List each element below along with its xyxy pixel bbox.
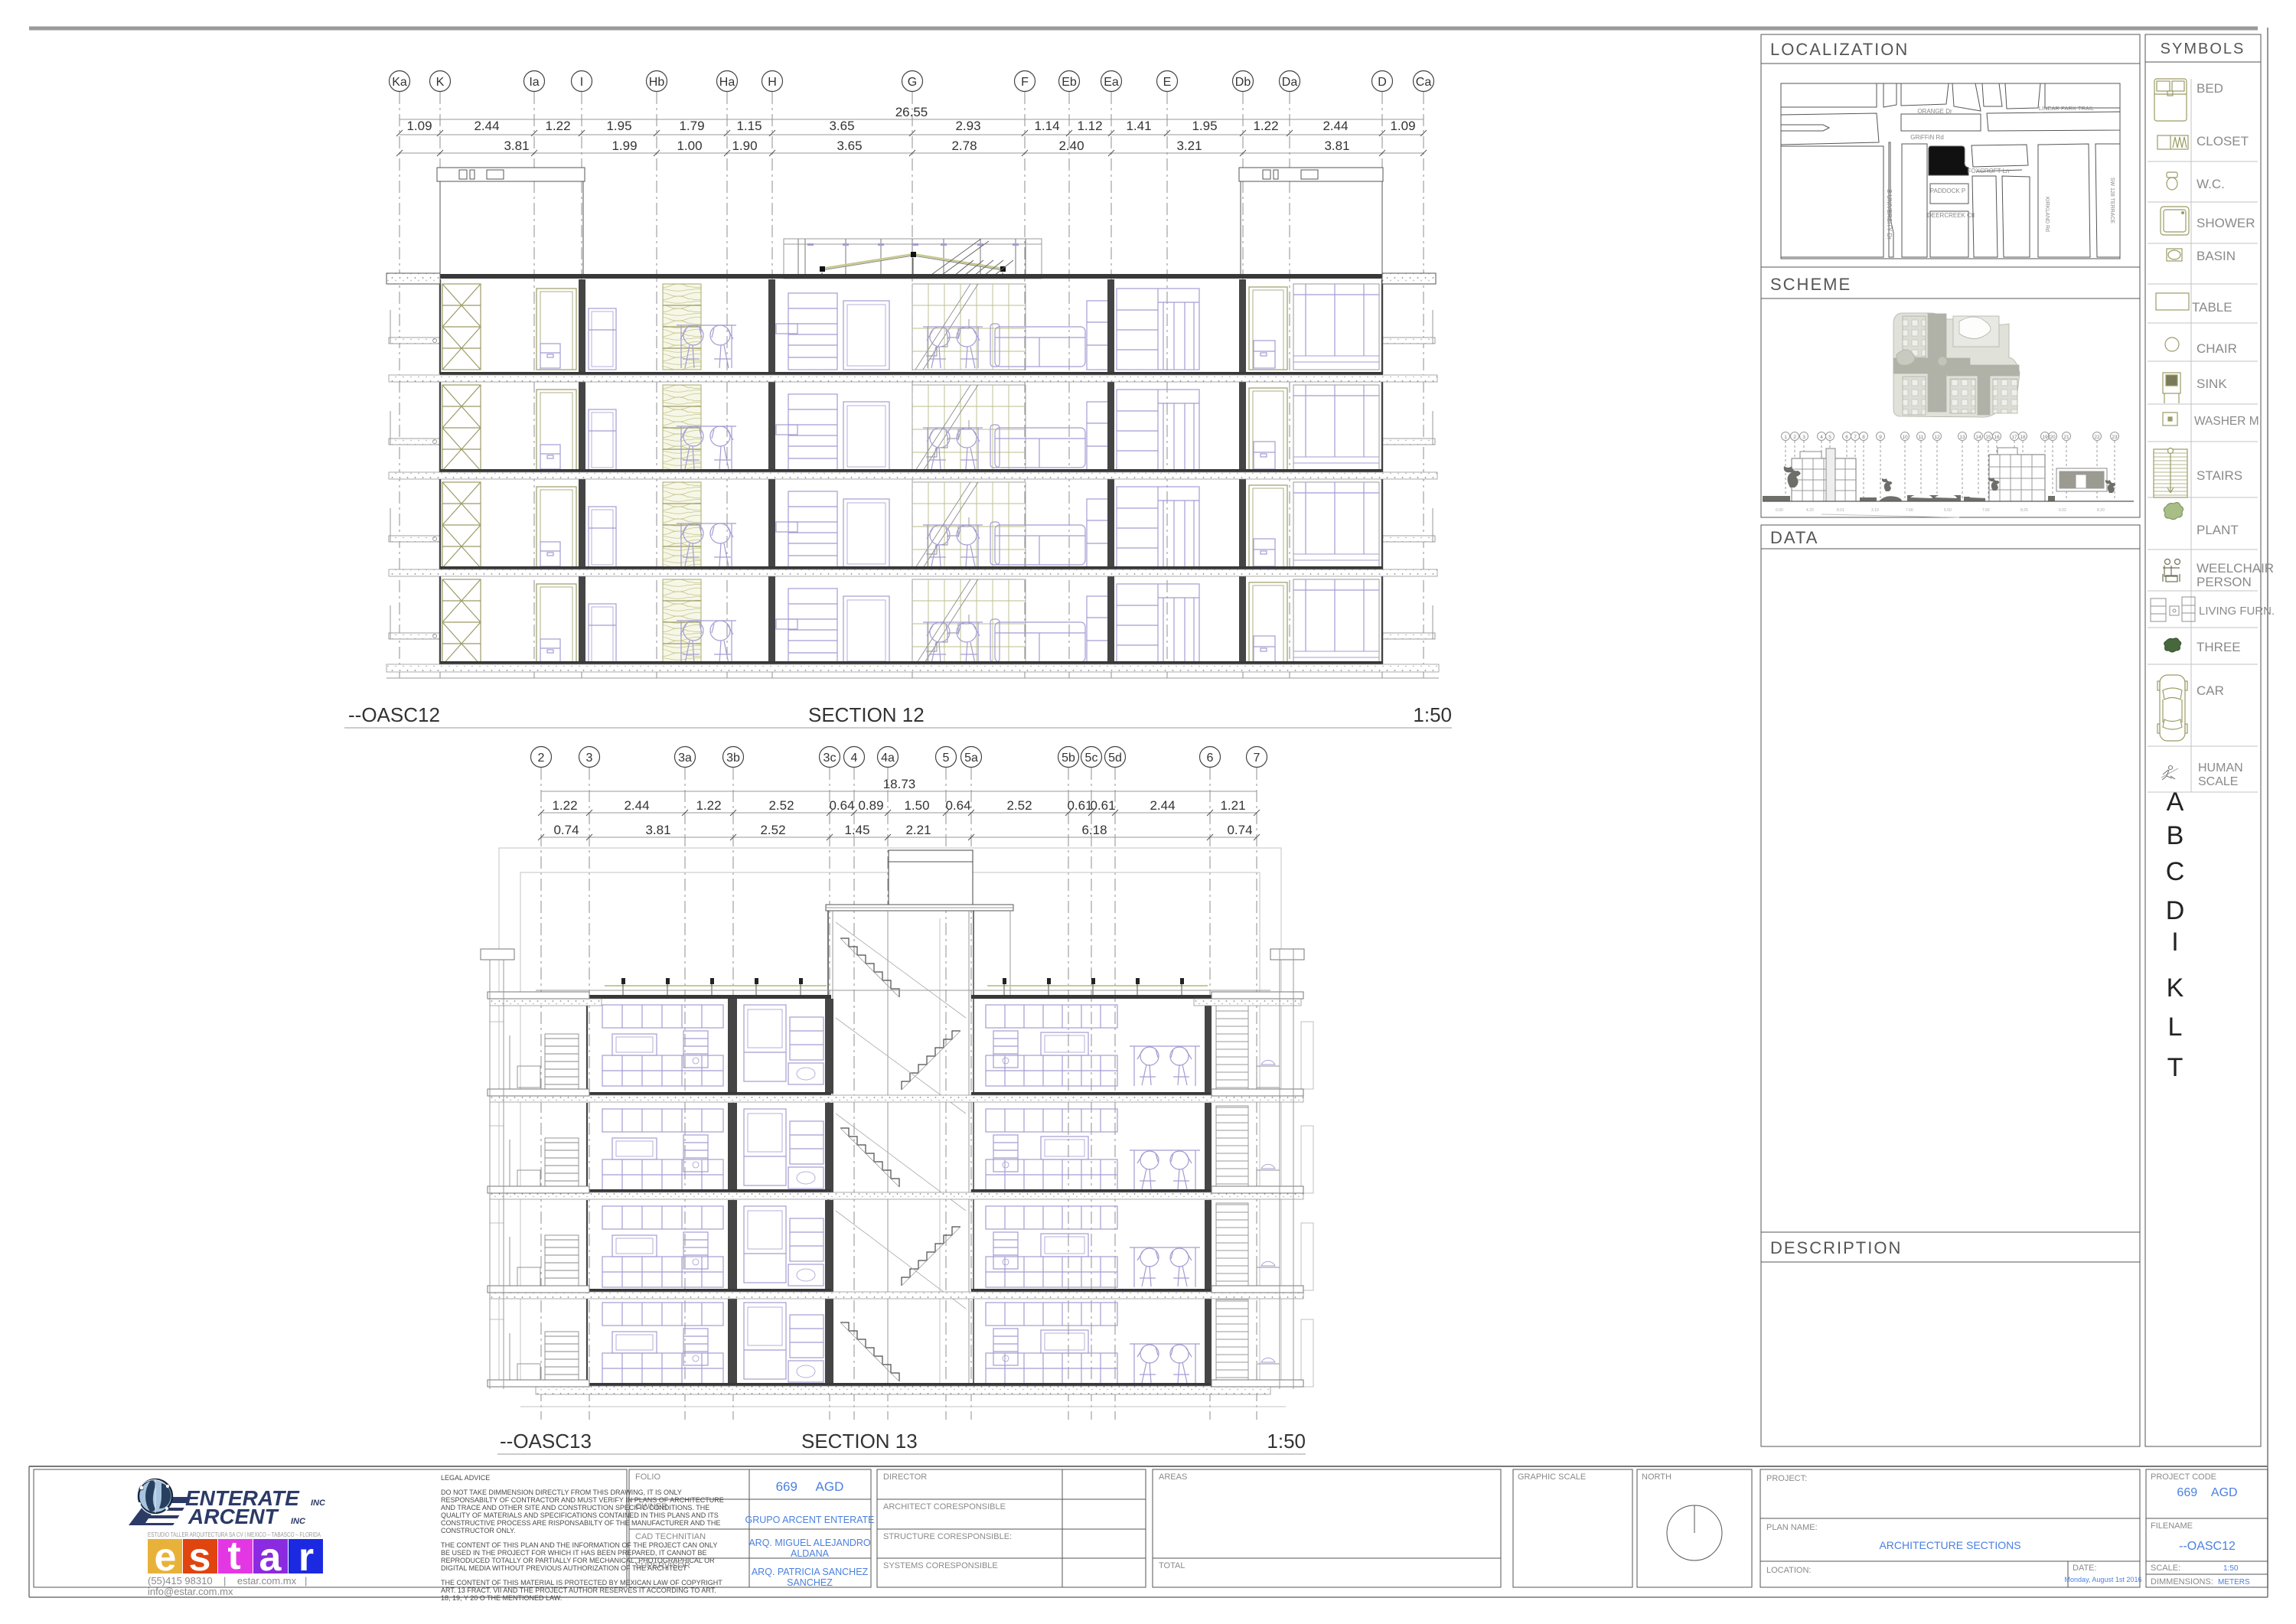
svg-text:CAR: CAR [2197, 683, 2224, 698]
svg-text:DATA: DATA [1770, 528, 1818, 547]
svg-text:2.52: 2.52 [768, 798, 794, 813]
svg-text:5: 5 [943, 752, 950, 765]
svg-text:SHOWER: SHOWER [2197, 216, 2255, 230]
svg-text:PROJECT:: PROJECT: [1766, 1474, 1807, 1483]
svg-text:ARCENT: ARCENT [188, 1505, 280, 1528]
svg-text:SW 128 TERRACE: SW 128 TERRACE [2109, 178, 2115, 223]
svg-text:1.00: 1.00 [677, 139, 702, 153]
svg-text:e: e [155, 1535, 177, 1580]
svg-text:NORTH: NORTH [1642, 1472, 1671, 1482]
svg-text:1.45: 1.45 [844, 823, 869, 837]
svg-text:1:50: 1:50 [1413, 703, 1452, 726]
svg-text:I: I [580, 76, 583, 89]
svg-text:CAD TECHNITIAN: CAD TECHNITIAN [635, 1532, 706, 1541]
svg-text:5a: 5a [964, 752, 978, 765]
svg-text:1: 1 [1784, 435, 1787, 440]
svg-text:RESPONSABILTY OF CONTRACTOR AN: RESPONSABILTY OF CONTRACTOR AND MUST VER… [441, 1496, 724, 1504]
svg-text:--OASC13: --OASC13 [500, 1430, 592, 1453]
svg-text:CHAIR: CHAIR [2197, 341, 2237, 356]
svg-text:FOLIO: FOLIO [635, 1472, 660, 1482]
svg-text:Ea: Ea [1104, 76, 1119, 89]
svg-text:LOCATION:: LOCATION: [1766, 1566, 1811, 1575]
svg-text:KIRKLAND Rd: KIRKLAND Rd [2044, 197, 2050, 232]
svg-text:22: 22 [2094, 435, 2100, 440]
svg-text:0.74: 0.74 [553, 823, 579, 837]
svg-text:(55)415 98310 | estar.c: (55)415 98310 | estar.com.mx | [148, 1575, 307, 1586]
svg-text:1.09: 1.09 [406, 119, 432, 133]
svg-text:ART. 13 FRACT. VII AND THE PRO: ART. 13 FRACT. VII AND THE PROJECT AUTHO… [441, 1586, 716, 1594]
svg-text:DATE:: DATE: [2073, 1564, 2097, 1573]
svg-text:10: 10 [1902, 435, 1908, 440]
svg-text:SYSTEMS CORESPONSIBLE: SYSTEMS CORESPONSIBLE [883, 1561, 998, 1570]
svg-text:1.22: 1.22 [552, 798, 577, 813]
svg-text:23: 23 [2112, 435, 2118, 440]
svg-text:8.25: 8.25 [2020, 508, 2028, 513]
svg-text:Db: Db [1235, 76, 1251, 89]
svg-text:T: T [2167, 1053, 2183, 1082]
svg-text:FOXCROFT Ln: FOXCROFT Ln [1968, 168, 2010, 174]
svg-text:2: 2 [538, 752, 545, 765]
svg-text:DIRECTOR: DIRECTOR [883, 1472, 927, 1482]
svg-text:5d: 5d [1108, 752, 1122, 765]
svg-text:5c: 5c [1085, 752, 1098, 765]
svg-text:LINEAR PARK TRAIL: LINEAR PARK TRAIL [2039, 105, 2094, 112]
svg-text:6.18: 6.18 [1081, 823, 1107, 837]
svg-text:2.93: 2.93 [955, 119, 980, 133]
svg-text:6.02: 6.02 [2059, 508, 2066, 513]
svg-text:0.00: 0.00 [1776, 508, 1783, 513]
svg-text:3.65: 3.65 [829, 119, 854, 133]
svg-text:PADDOCK P: PADDOCK P [1930, 188, 1966, 194]
svg-text:BE USED IN THE PROJECT FOR WHI: BE USED IN THE PROJECT FOR WHICH IT HAS … [441, 1549, 707, 1557]
svg-text:CONSTRUCTOR ONLY.: CONSTRUCTOR ONLY. [441, 1527, 516, 1534]
svg-text:D: D [2166, 896, 2185, 925]
svg-text:AND TRACE AND OTHER SITE AND C: AND TRACE AND OTHER SITE AND CONSTRUCTIO… [441, 1504, 709, 1511]
svg-text:Hb: Hb [649, 76, 665, 89]
svg-text:14: 14 [1975, 435, 1981, 440]
svg-text:6.50: 6.50 [1944, 508, 1952, 513]
svg-text:3.10: 3.10 [1871, 508, 1879, 513]
svg-text:8: 8 [1862, 435, 1865, 440]
svg-text:7.66: 7.66 [1906, 508, 1913, 513]
svg-text:3.81: 3.81 [1324, 139, 1349, 153]
svg-text:1.99: 1.99 [612, 139, 637, 153]
svg-text:4: 4 [1820, 435, 1823, 440]
svg-text:D: D [1378, 76, 1387, 89]
svg-text:THE CONTENT OF THIS MATERIAL I: THE CONTENT OF THIS MATERIAL IS PROTECTE… [441, 1579, 722, 1586]
svg-text:16: 16 [1994, 435, 2000, 440]
svg-text:--OASC12: --OASC12 [2179, 1540, 2236, 1553]
svg-text:METERS: METERS [2218, 1578, 2250, 1586]
svg-text:E: E [1163, 76, 1172, 89]
svg-text:Ca: Ca [1416, 76, 1432, 89]
svg-text:7: 7 [1254, 752, 1261, 765]
svg-text:21: 21 [2063, 435, 2069, 440]
svg-text:PLAN NAME:: PLAN NAME: [1766, 1523, 1818, 1532]
svg-text:3a: 3a [678, 752, 692, 765]
svg-text:Da: Da [1282, 76, 1298, 89]
svg-text:DO NOT TAKE DIMMENSION DIRECTL: DO NOT TAKE DIMMENSION DIRECTLY FROM THI… [441, 1489, 682, 1496]
svg-text:DESCRIPTION: DESCRIPTION [1770, 1238, 1902, 1257]
svg-text:9: 9 [1879, 435, 1882, 440]
svg-text:2: 2 [1793, 435, 1796, 440]
svg-text:2.52: 2.52 [760, 823, 785, 837]
svg-text:4a: 4a [881, 752, 895, 765]
svg-text:2.52: 2.52 [1006, 798, 1032, 813]
svg-text:2.44: 2.44 [624, 798, 649, 813]
svg-text:2.40: 2.40 [1058, 139, 1084, 153]
svg-text:20: 20 [2050, 435, 2056, 440]
svg-text:3.81: 3.81 [504, 139, 529, 153]
svg-text:GRUPO ARCENT ENTERATE: GRUPO ARCENT ENTERATE [745, 1515, 874, 1525]
svg-text:TOTAL: TOTAL [1159, 1561, 1185, 1570]
svg-text:DIGITAL MEDIA WITHOUT PREVIOUS: DIGITAL MEDIA WITHOUT PREVIOUS AUTHORIZA… [441, 1564, 687, 1572]
svg-text:info@estar.com.mx: info@estar.com.mx [148, 1586, 233, 1597]
svg-text:WASHER M.: WASHER M. [2194, 415, 2262, 428]
svg-text:B: B [2167, 821, 2184, 850]
svg-text:1:50: 1:50 [1267, 1430, 1306, 1453]
svg-text:Eb: Eb [1062, 76, 1077, 89]
svg-text:CONSTRUCTIVE PROCESS ARE RISPO: CONSTRUCTIVE PROCESS ARE RISPONSABILTY O… [441, 1519, 720, 1527]
svg-text:ALDANA: ALDANA [791, 1548, 830, 1559]
svg-text:1.09: 1.09 [1390, 119, 1415, 133]
svg-text:DEERCREEK Ctl: DEERCREEK Ctl [1927, 212, 1975, 219]
svg-text:ARQ. PATRICIA SANCHEZ: ARQ. PATRICIA SANCHEZ [752, 1567, 869, 1577]
svg-text:ARCHITECTURE SECTIONS: ARCHITECTURE SECTIONS [1879, 1539, 2020, 1551]
svg-text:1.95: 1.95 [606, 119, 631, 133]
svg-text:REPRODUCED TOTALLY OR PARTIALL: REPRODUCED TOTALLY OR PARTIALLY FOR MECH… [441, 1557, 715, 1564]
svg-text:C: C [2166, 857, 2185, 886]
svg-text:6: 6 [1845, 435, 1848, 440]
svg-text:K: K [436, 76, 445, 89]
svg-text:Ha: Ha [719, 76, 735, 89]
svg-text:1.95: 1.95 [1192, 119, 1217, 133]
svg-text:F: F [1021, 76, 1029, 89]
svg-text:1.22: 1.22 [1253, 119, 1278, 133]
svg-text:19: 19 [2042, 435, 2048, 440]
svg-text:a: a [259, 1535, 282, 1580]
svg-text:SECTION 12: SECTION 12 [808, 703, 925, 726]
svg-text:4.20: 4.20 [1806, 508, 1814, 513]
svg-text:G: G [908, 76, 917, 89]
svg-text:3: 3 [586, 752, 593, 765]
svg-text:0.74: 0.74 [1227, 823, 1252, 837]
svg-text:INC: INC [291, 1517, 306, 1526]
svg-text:18.73: 18.73 [883, 777, 916, 791]
svg-text:SCALE: SCALE [2198, 775, 2238, 788]
svg-text:STAIRS: STAIRS [2197, 468, 2242, 483]
svg-text:I: I [2171, 928, 2178, 957]
svg-text:PROJECT CODE: PROJECT CODE [2151, 1472, 2216, 1482]
svg-text:ARQ. MIGUEL ALEJANDRO: ARQ. MIGUEL ALEJANDRO [748, 1538, 871, 1548]
svg-text:1.90: 1.90 [732, 139, 757, 153]
svg-text:A: A [2167, 788, 2184, 817]
svg-text:669 AGD: 669 AGD [776, 1479, 844, 1494]
svg-text:PLANT: PLANT [2197, 523, 2239, 537]
svg-text:6: 6 [1207, 752, 1214, 765]
svg-text:1.21: 1.21 [1220, 798, 1245, 813]
svg-text:INC: INC [311, 1498, 326, 1508]
svg-text:ARCHITECT CORESPONSIBLE: ARCHITECT CORESPONSIBLE [883, 1502, 1006, 1511]
svg-text:TABLE: TABLE [2192, 300, 2232, 315]
svg-text:5: 5 [1828, 435, 1831, 440]
svg-text:SCALE:: SCALE: [2151, 1564, 2180, 1573]
svg-text:3.81: 3.81 [645, 823, 670, 837]
svg-text:1.41: 1.41 [1126, 119, 1151, 133]
svg-text:1.22: 1.22 [545, 119, 570, 133]
svg-text:s: s [189, 1535, 211, 1580]
svg-text:QUALITY OF MATERIALS AND SPECI: QUALITY OF MATERIALS AND SPECIFICATIONS … [441, 1511, 719, 1519]
svg-text:15: 15 [1985, 435, 1991, 440]
svg-text:CLOSET: CLOSET [2197, 134, 2249, 148]
svg-text:BED: BED [2197, 81, 2223, 96]
svg-text:DIMMENSIONS:: DIMMENSIONS: [2151, 1577, 2213, 1586]
svg-text:H: H [768, 76, 777, 89]
svg-text:K: K [2167, 973, 2184, 1003]
svg-text:PERSON: PERSON [2197, 575, 2252, 589]
svg-text:THREE: THREE [2197, 640, 2241, 654]
svg-text:1.15: 1.15 [736, 119, 762, 133]
svg-text:ORANGE Dr: ORANGE Dr [1917, 108, 1952, 115]
svg-text:2.44: 2.44 [1322, 119, 1348, 133]
svg-text:1.50: 1.50 [904, 798, 929, 813]
svg-text:FILENAME: FILENAME [2151, 1521, 2193, 1531]
svg-text:18, 19, Y 20 O THE MENTIONED L: 18, 19, Y 20 O THE MENTIONED LAW. [441, 1594, 562, 1602]
svg-text:669 AGD: 669 AGD [2177, 1486, 2237, 1499]
svg-text:7: 7 [1854, 435, 1857, 440]
svg-text:SINK: SINK [2197, 377, 2227, 391]
svg-text:1.12: 1.12 [1077, 119, 1102, 133]
svg-text:WEELCHAIR: WEELCHAIR [2197, 561, 2274, 576]
svg-text:0.64: 0.64 [829, 798, 854, 813]
svg-text:LEGAL ADVICE: LEGAL ADVICE [441, 1474, 490, 1482]
svg-text:1.79: 1.79 [679, 119, 704, 133]
svg-text:SCHEME: SCHEME [1770, 275, 1851, 294]
svg-text:2.44: 2.44 [474, 119, 499, 133]
svg-text:3c: 3c [823, 752, 837, 765]
svg-text:4: 4 [851, 752, 858, 765]
svg-text:17: 17 [2011, 435, 2017, 440]
svg-text:26.55: 26.55 [895, 105, 928, 119]
svg-text:Monday, August 1st 2016: Monday, August 1st 2016 [2065, 1576, 2142, 1583]
svg-text:LOCALIZATION: LOCALIZATION [1770, 40, 1909, 59]
svg-text:7.66: 7.66 [1982, 508, 1990, 513]
svg-text:Ia: Ia [529, 76, 539, 89]
svg-text:THE CONTENT OF THIS PLAN AND T: THE CONTENT OF THIS PLAN AND THE INFORMA… [441, 1541, 717, 1549]
svg-text:3b: 3b [726, 752, 740, 765]
svg-text:2.21: 2.21 [905, 823, 931, 837]
svg-text:LIVING FURN.: LIVING FURN. [2199, 605, 2275, 618]
svg-text:0.64: 0.64 [945, 798, 970, 813]
svg-text:AREAS: AREAS [1159, 1472, 1187, 1482]
svg-text:STRUCTURE CORESPONSIBLE:: STRUCTURE CORESPONSIBLE: [883, 1532, 1012, 1541]
svg-text:12: 12 [1934, 435, 1940, 440]
svg-text:3.21: 3.21 [1176, 139, 1202, 153]
svg-text:1.14: 1.14 [1034, 119, 1059, 133]
svg-text:8.20: 8.20 [2097, 508, 2105, 513]
svg-text:3.65: 3.65 [837, 139, 862, 153]
svg-text:SANCHEZ: SANCHEZ [787, 1577, 833, 1588]
svg-text:GRAPHIC SCALE: GRAPHIC SCALE [1518, 1472, 1586, 1482]
svg-text:W.C.: W.C. [2197, 177, 2225, 191]
svg-text:Ka: Ka [392, 76, 407, 89]
svg-text:11: 11 [1919, 435, 1924, 440]
svg-text:GRiFFiN Rd: GRiFFiN Rd [1910, 134, 1944, 141]
svg-text:SECTION 13: SECTION 13 [801, 1430, 918, 1453]
svg-text:5b: 5b [1062, 752, 1075, 765]
svg-text:L: L [2168, 1013, 2183, 1042]
svg-text:r: r [298, 1535, 314, 1580]
svg-text:18: 18 [2020, 435, 2026, 440]
svg-text:13: 13 [1959, 435, 1965, 440]
svg-text:--OASC12: --OASC12 [348, 703, 440, 726]
svg-text:1:50: 1:50 [2223, 1564, 2239, 1573]
svg-text:0.89: 0.89 [858, 798, 883, 813]
svg-text:2.44: 2.44 [1150, 798, 1175, 813]
svg-text:2.78: 2.78 [951, 139, 977, 153]
svg-text:1.22: 1.22 [696, 798, 721, 813]
svg-text:S UNIVERSITY Dr: S UNIVERSITY Dr [1886, 189, 1893, 240]
svg-text:BASIN: BASIN [2197, 249, 2236, 263]
svg-text:SYMBOLS: SYMBOLS [2161, 41, 2245, 57]
svg-text:HUMAN: HUMAN [2198, 761, 2243, 774]
svg-text:3: 3 [1802, 435, 1805, 440]
svg-text:t: t [227, 1534, 240, 1578]
svg-text:8.01: 8.01 [1837, 508, 1844, 513]
